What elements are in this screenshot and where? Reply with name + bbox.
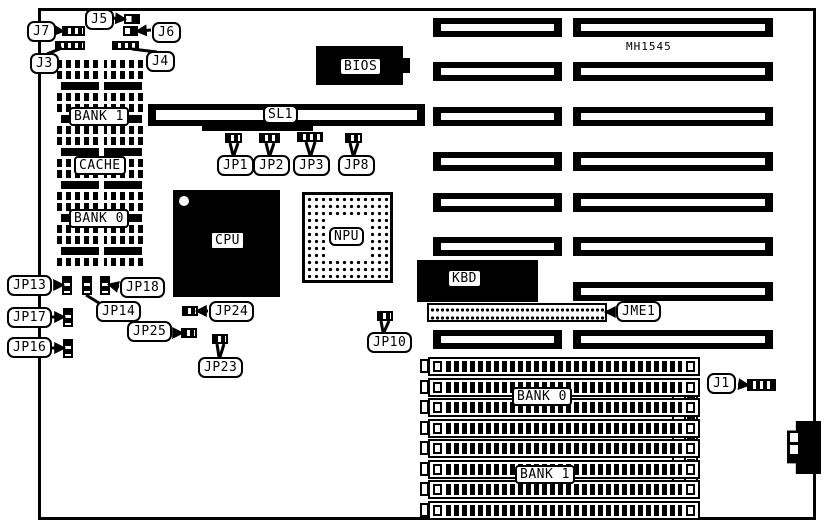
label-j7: J7: [27, 21, 56, 42]
label-cpu: CPU: [211, 232, 244, 249]
label-dip-bank1: BANK 1: [69, 107, 129, 126]
isa-slot-stripe: [441, 158, 554, 165]
simm-clip-right: [686, 382, 695, 393]
simm-socket: [428, 439, 700, 458]
label-jp23: JP23: [198, 357, 243, 378]
jumper-jp18: [100, 276, 110, 295]
part-number: MH1545: [626, 40, 672, 53]
jumper-jp17: [63, 308, 73, 327]
simm-pin-band: [446, 423, 682, 434]
jumper-jp13: [62, 276, 72, 295]
simm-pin-band: [446, 361, 682, 372]
label-jp16: JP16: [7, 337, 52, 358]
simm-clip-left: [433, 382, 442, 393]
isa-slot-stripe: [581, 243, 765, 250]
simm-clip-left: [433, 423, 442, 434]
label-j1: J1: [707, 373, 736, 394]
jumper-jp1: [225, 133, 242, 143]
simm-pin-band: [446, 443, 682, 454]
isa-slot-stripe: [581, 158, 765, 165]
label-jp18: JP18: [120, 277, 165, 298]
label-jp24: JP24: [209, 301, 254, 322]
simm-clip-left: [433, 402, 442, 413]
isa-slot-stripe: [441, 243, 554, 250]
isa-slot: [573, 237, 773, 256]
jumper-jp16: [63, 339, 73, 358]
isa-slot: [433, 107, 562, 126]
simm-clip-right: [686, 464, 695, 475]
label-jme1: JME1: [616, 301, 661, 322]
isa-slot: [573, 193, 773, 212]
simm-clip-right: [686, 505, 695, 516]
simm-clip-left: [433, 443, 442, 454]
simm-pin-band: [446, 484, 682, 495]
isa-slot-stripe: [581, 68, 765, 75]
jumper-jp14: [82, 276, 92, 295]
isa-slot: [433, 62, 562, 81]
isa-slot-stripe: [581, 113, 765, 120]
motherboard-diagram: J7 J5 J6 J3 J4 BANK 1 CACHE BANK 0 SL1 J…: [0, 0, 824, 527]
isa-slot: [573, 107, 773, 126]
connector-j1: [747, 379, 776, 391]
simm-pin-band: [446, 505, 682, 516]
label-j4: J4: [146, 51, 175, 72]
label-kbd: KBD: [447, 269, 482, 288]
label-sl1: SL1: [263, 105, 298, 124]
label-jp14: JP14: [96, 301, 141, 322]
jumper-jp25: [181, 328, 197, 338]
simm-socket: [428, 501, 700, 520]
label-bios: BIOS: [339, 57, 382, 76]
isa-slot-stripe: [581, 199, 765, 206]
isa-slot: [433, 330, 562, 349]
isa-slot: [433, 193, 562, 212]
label-jp17: JP17: [7, 307, 52, 328]
bios-chip-tab: [403, 58, 410, 73]
label-jp10: JP10: [367, 332, 412, 353]
power-connector-notch: [790, 445, 798, 454]
simm-clip-right: [686, 423, 695, 434]
label-jp1: JP1: [217, 155, 254, 176]
jumper-jp2: [259, 133, 280, 143]
slot-sl1-shadow: [202, 126, 313, 131]
isa-slot-stripe: [441, 68, 554, 75]
jumper-jp23: [212, 334, 228, 344]
isa-slot: [433, 237, 562, 256]
simm-clip-left: [433, 464, 442, 475]
connector-j5: [124, 14, 140, 24]
connector-j6: [123, 26, 138, 36]
label-simm-bank1: BANK 1: [515, 465, 575, 484]
jumper-jp8: [345, 133, 362, 143]
simm-clip-left: [433, 484, 442, 495]
isa-slot: [573, 62, 773, 81]
isa-slot-stripe: [581, 336, 765, 343]
isa-slot: [573, 18, 773, 37]
jumper-jp24: [182, 306, 198, 316]
label-simm-bank0: BANK 0: [512, 387, 572, 406]
label-jp2: JP2: [253, 155, 290, 176]
label-jp25: JP25: [127, 321, 172, 342]
isa-slot-stripe: [441, 336, 554, 343]
jumper-jp3: [297, 132, 323, 142]
isa-slot-stripe: [441, 113, 554, 120]
isa-slot: [573, 152, 773, 171]
isa-slot-stripe: [581, 24, 765, 31]
simm-socket: [428, 419, 700, 438]
label-jp3: JP3: [293, 155, 330, 176]
label-j6: J6: [152, 22, 181, 43]
isa-slot: [573, 282, 773, 301]
simm-clip-right: [686, 402, 695, 413]
isa-slot: [433, 18, 562, 37]
isa-slot: [573, 330, 773, 349]
label-j3: J3: [30, 53, 59, 74]
simm-clip-right: [686, 361, 695, 372]
isa-slot-stripe: [441, 24, 554, 31]
jumper-jp10: [377, 311, 393, 321]
power-connector-notch: [790, 433, 798, 442]
simm-socket: [428, 357, 700, 376]
label-dip-cache: CACHE: [74, 156, 126, 175]
connector-j3: [55, 41, 85, 50]
label-j5: J5: [85, 9, 114, 30]
label-jp8: JP8: [338, 155, 375, 176]
connector-jme1: [427, 303, 607, 322]
label-jp13: JP13: [7, 275, 52, 296]
simm-clip-right: [686, 484, 695, 495]
simm-clip-left: [433, 505, 442, 516]
connector-j4: [112, 41, 139, 50]
label-dip-bank0: BANK 0: [69, 209, 129, 228]
simm-clip-left: [433, 361, 442, 372]
label-npu: NPU: [329, 227, 364, 246]
simm-clip-right: [686, 443, 695, 454]
isa-slot-stripe: [441, 199, 554, 206]
isa-slot: [433, 152, 562, 171]
cpu-pin1-dot: [179, 196, 189, 206]
connector-j7: [62, 26, 85, 36]
isa-slot-stripe: [581, 288, 765, 295]
